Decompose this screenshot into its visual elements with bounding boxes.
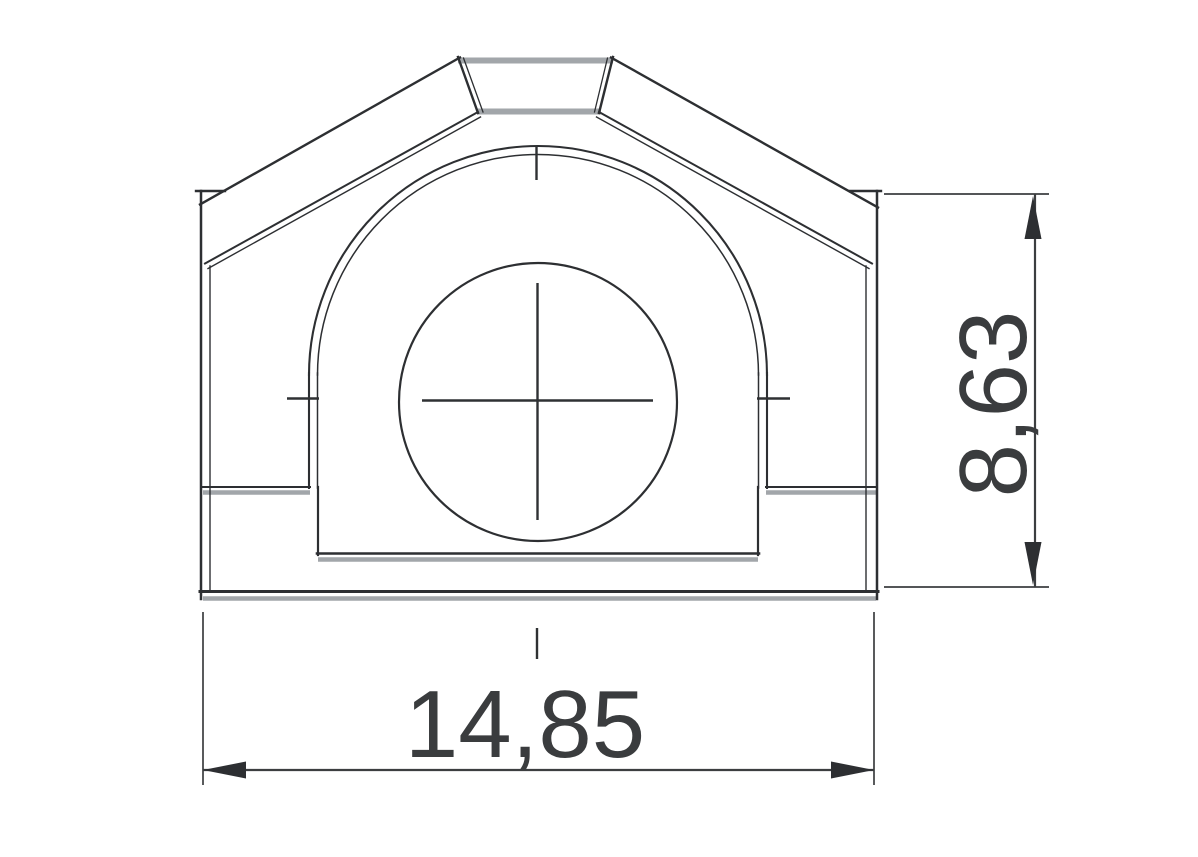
height-arrow-top: [1025, 196, 1042, 239]
roof-left-underside-2: [208, 117, 481, 269]
roof-right-underside-2: [597, 117, 870, 269]
drawing-canvas: 14,85 8,63: [0, 0, 1198, 857]
roof-left-underside: [205, 112, 478, 264]
roof-left-outer: [200, 58, 460, 205]
roof-right-underside: [599, 112, 872, 264]
width-arrow-left: [203, 762, 246, 779]
dimension-width: 14,85: [203, 612, 874, 785]
width-dimension-label: 14,85: [405, 671, 645, 778]
soft-face-lines: [203, 61, 876, 599]
technical-drawing-svg: 14,85 8,63: [0, 0, 1198, 857]
width-arrow-right: [831, 762, 874, 779]
dimension-height: 8,63: [884, 194, 1049, 587]
height-arrow-bottom: [1025, 542, 1042, 585]
centerlines: [287, 146, 790, 659]
height-dimension-label: 8,63: [940, 311, 1047, 498]
apex-left-edge: [458, 57, 478, 113]
apex-left-edge-inner: [464, 58, 484, 112]
